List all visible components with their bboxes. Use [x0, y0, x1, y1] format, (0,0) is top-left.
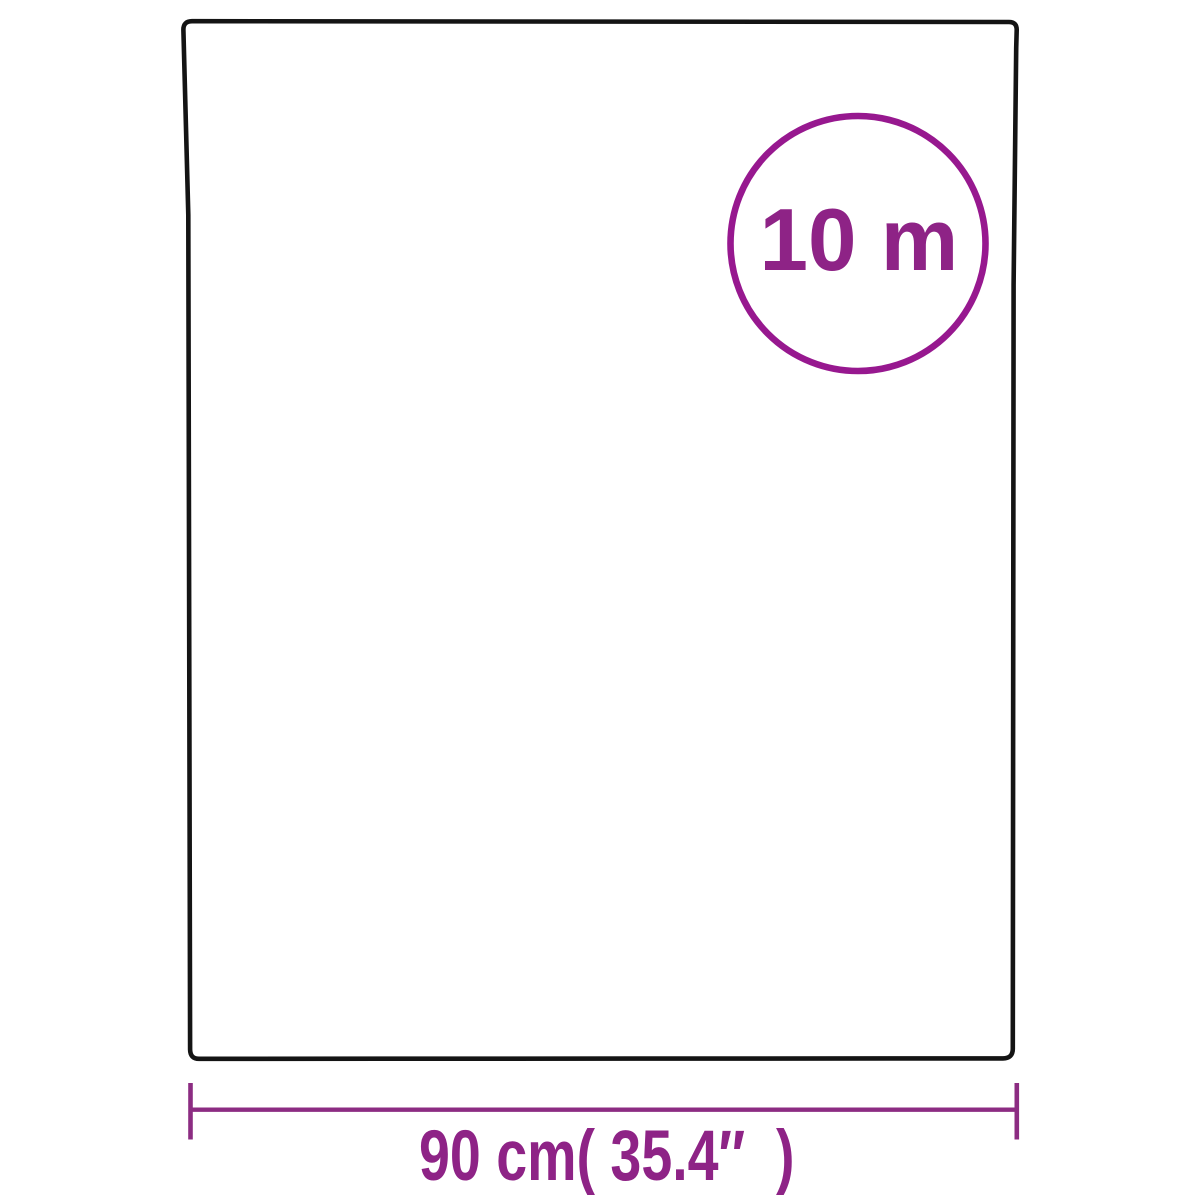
- svg-text:90 cm( 35.4″ ): 90 cm( 35.4″ ): [419, 1117, 795, 1196]
- svg-text:10 m: 10 m: [760, 190, 959, 289]
